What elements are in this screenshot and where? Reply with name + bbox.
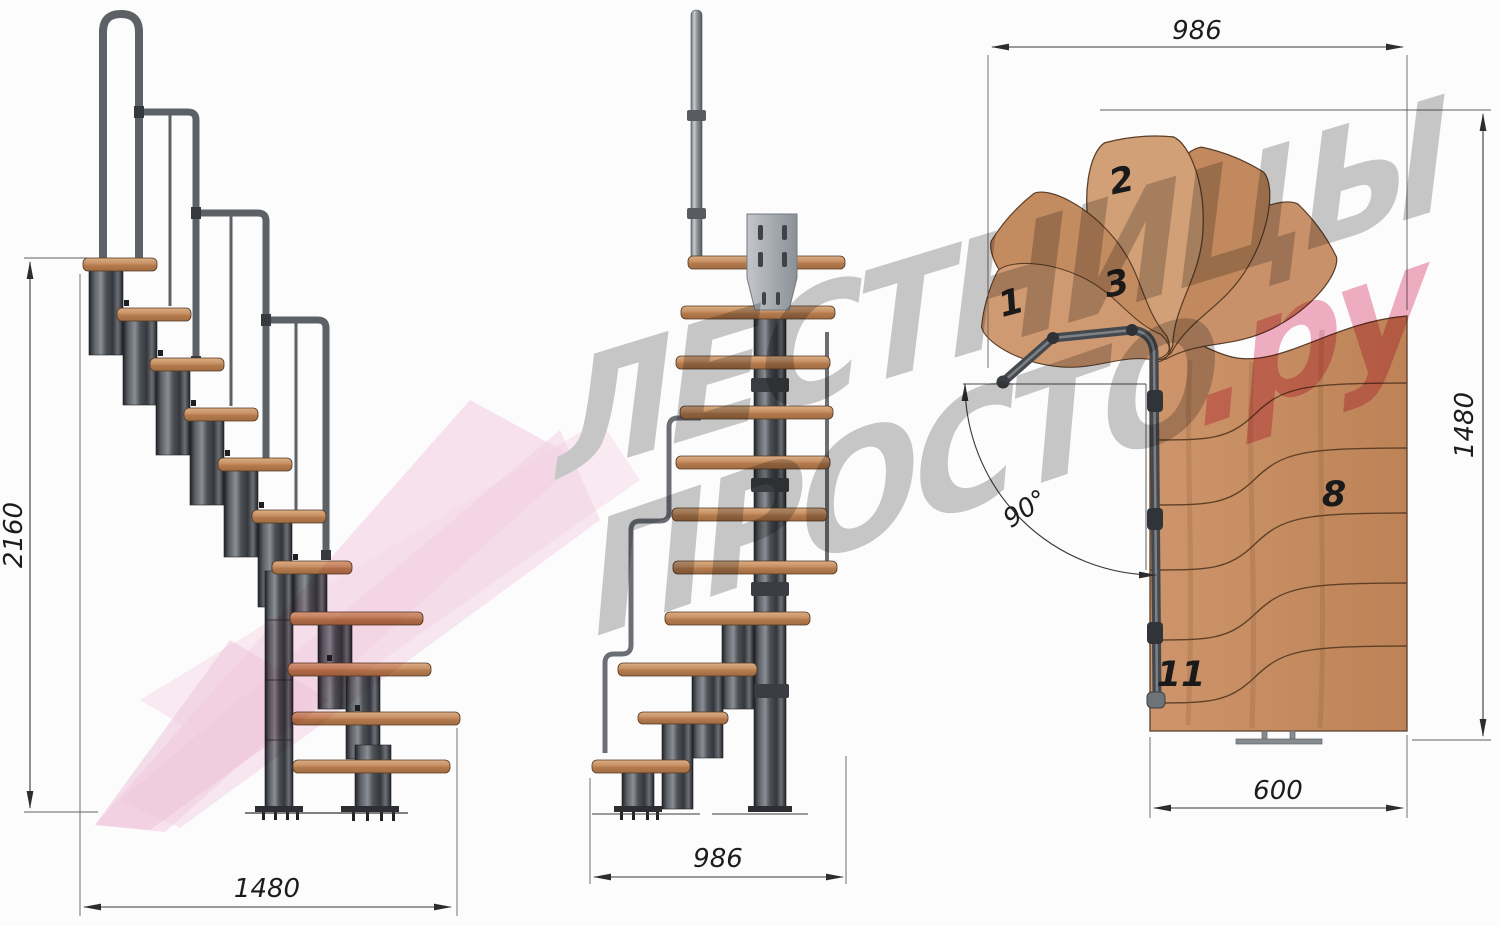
- staircase-technical-drawing: 1 2 3 8 11 90° 2160 1480 986 986 1480 6: [0, 0, 1500, 926]
- tread-number-8: 8: [1322, 475, 1346, 515]
- handrail-loop: [103, 14, 139, 268]
- dim-plan-width-label: 986: [1172, 16, 1222, 46]
- tread-number-11: 11: [1157, 655, 1206, 695]
- drawing-canvas: 1 2 3 8 11 90° 2160 1480 986 986 1480 6: [0, 0, 1500, 926]
- dim-exit-width-label: 600: [1253, 776, 1303, 806]
- side-view-feet: [245, 806, 408, 821]
- dim-plan-depth-label: 1480: [1450, 392, 1480, 458]
- dim-front-width-label: 986: [693, 844, 743, 874]
- top-rail-pole: [691, 10, 702, 262]
- base-bracket: [1236, 731, 1322, 744]
- dim-side-height-label: 2160: [0, 502, 29, 568]
- front-view-feet: [592, 806, 808, 820]
- dim-side-width-label: 1480: [234, 874, 300, 904]
